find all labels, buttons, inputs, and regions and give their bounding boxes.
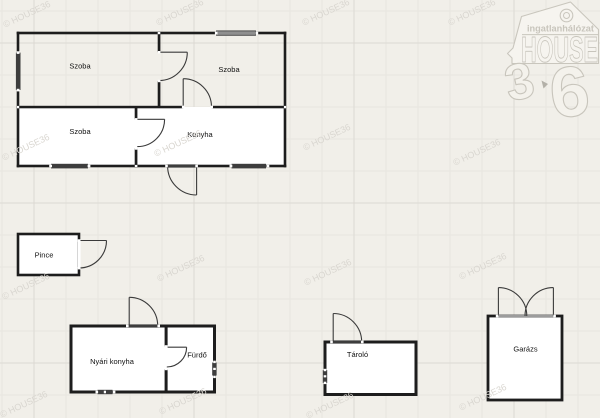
svg-text:Tároló: Tároló bbox=[347, 350, 368, 359]
svg-text:Szoba: Szoba bbox=[218, 65, 240, 74]
svg-text:Szoba: Szoba bbox=[69, 127, 91, 136]
svg-text:Szoba: Szoba bbox=[69, 62, 91, 71]
svg-text:Fürdő: Fürdő bbox=[187, 351, 207, 360]
svg-text:Pince: Pince bbox=[35, 251, 54, 260]
svg-text:Garázs: Garázs bbox=[513, 345, 537, 354]
svg-text:Nyári konyha: Nyári konyha bbox=[90, 357, 135, 366]
svg-text:6: 6 bbox=[546, 51, 594, 134]
